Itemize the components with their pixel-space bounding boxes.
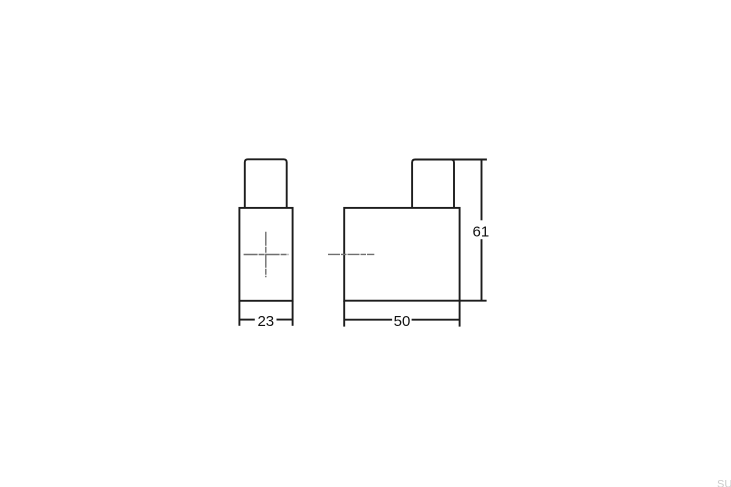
svg-text:SU: SU	[717, 479, 731, 487]
svg-text:23: 23	[257, 313, 274, 330]
svg-text:61: 61	[473, 224, 490, 241]
svg-text:50: 50	[394, 313, 411, 330]
